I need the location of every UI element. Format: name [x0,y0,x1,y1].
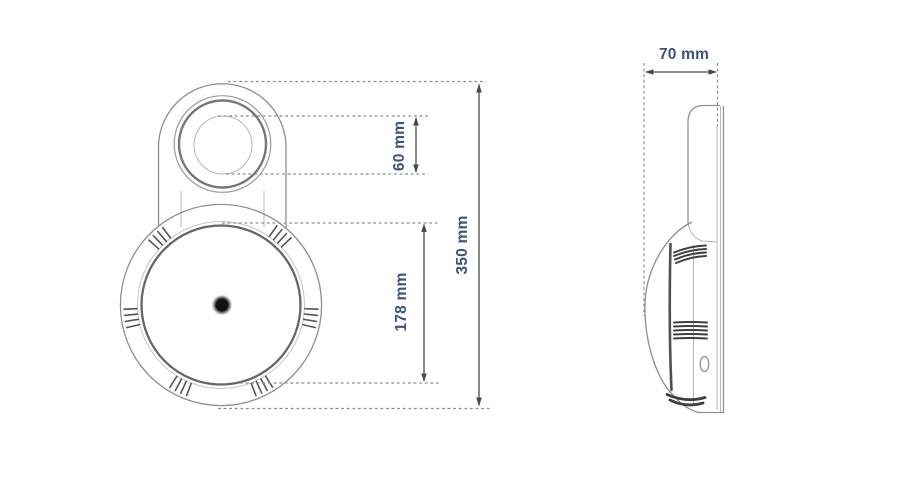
dimension-arrow-350mm [476,84,482,407]
dimension-arrow-60mm [413,117,419,173]
grip-hatch-left [124,307,140,327]
technical-drawing-canvas: 60 mm 178 mm 350 mm 70 mm [0,0,920,487]
side-view [645,106,724,414]
bezel-rim-side [670,244,672,390]
center-screw [217,300,228,311]
dimension-label-overall-height: 350 mm [454,216,472,275]
vent-middle [674,322,707,339]
dimension-arrow-178mm [421,224,427,383]
mounting-tab-fillet [688,224,717,242]
mounting-tab [159,84,287,228]
dimension-label-inner-face-diameter: 178 mm [393,273,411,332]
dimension-arrow-70mm [645,69,717,75]
grip-hatch-right [303,307,319,327]
front-view [120,84,321,406]
mounting-tab-side [688,106,720,225]
dimension-label-lens-diameter: 60 mm [391,121,409,171]
vent-bottom [667,395,705,405]
vent-top [674,246,706,264]
cable-hole [700,357,709,372]
dimension-label-depth: 70 mm [659,46,709,64]
lens-opening [194,116,252,174]
bezel-ring-outer [174,96,271,193]
